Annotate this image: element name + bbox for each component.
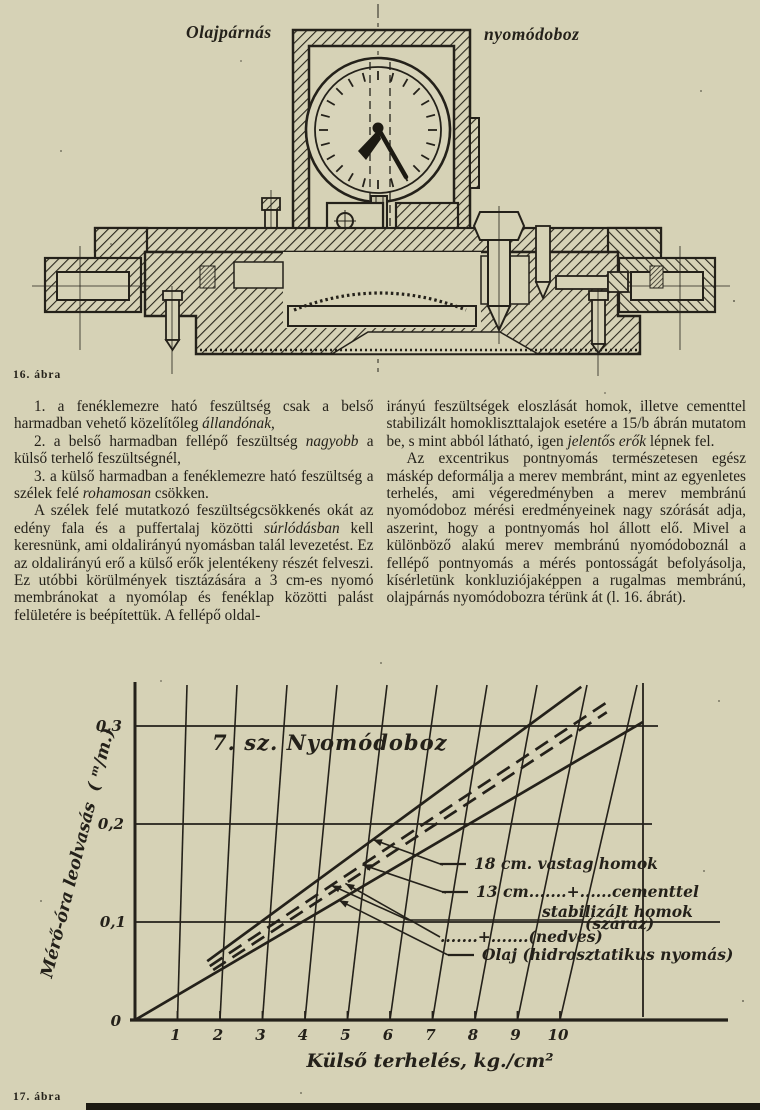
leader-arrowhead [339, 900, 349, 907]
tick-label: 3 [255, 1026, 265, 1044]
paragraph: A szélek felé mutatkozó feszültségcsökke… [14, 502, 374, 624]
tick-label: 0 [111, 1012, 122, 1030]
leader-arrowhead [345, 883, 355, 890]
legend-entry: Olaj (hidrosztatikus nyomás) [482, 945, 733, 964]
gridline-vertical [178, 685, 188, 1020]
tick-label: 2 [212, 1026, 223, 1044]
chart-title: 7. sz. Nyomódoboz [212, 730, 448, 755]
right-anchor-bolt [589, 286, 608, 376]
tick-label: 6 [383, 1026, 394, 1044]
paragraph: 1. a fenéklemezre ható feszültség csak a… [14, 398, 374, 433]
gasket-right [650, 266, 663, 288]
chart-x-axis-label: Külső terhelés, kg./cm² [275, 1050, 585, 1072]
article-text: 1. a fenéklemezre ható feszültség csak a… [14, 398, 746, 624]
tick-label: 4 [298, 1026, 308, 1044]
page-edge-bar [86, 1103, 760, 1110]
paragraph: 2. a belső harmadban fellépő feszültség … [14, 433, 374, 468]
legend-entry: .......+.......(nedves) [440, 927, 603, 946]
left-port [32, 246, 150, 350]
top-flange-plate [95, 228, 661, 252]
left-channel [234, 262, 283, 288]
tick-label: 8 [468, 1026, 479, 1044]
figure16-caption: 16. ábra [13, 369, 61, 381]
paragraph: Az excentrikus pontnyomás természetesen … [387, 450, 747, 607]
tick-label: 5 [340, 1026, 350, 1044]
figure17-caption: 17. ábra [13, 1091, 61, 1103]
scanned-book-page: Olajpárnás nyomódoboz [0, 0, 760, 1110]
scan-noise [0, 0, 2, 2]
gasket-left [200, 266, 215, 288]
legend-entry: 18 cm. vastag homok [474, 854, 658, 873]
needle-pivot [373, 123, 384, 134]
tick-label: 10 [548, 1026, 569, 1044]
pressure-plate [288, 306, 476, 326]
right-column: irányú feszültségek eloszlását homok, il… [387, 398, 747, 624]
tick-label: 0,1 [100, 913, 126, 931]
left-anchor-bolt [163, 286, 182, 374]
leader-arrowhead [373, 839, 383, 846]
paragraph: 3. a külső harmadban a fenéklemezre ható… [14, 468, 374, 503]
tick-label: 1 [170, 1026, 180, 1044]
paragraph: irányú feszültségek eloszlását homok, il… [387, 398, 747, 450]
tick-label: 9 [510, 1026, 521, 1044]
legend-entry: 13 cm.......+......cementtel [476, 882, 699, 901]
leader-arrowhead [362, 864, 372, 871]
figure16-drawing [0, 0, 760, 396]
pressure-cell-base [32, 206, 730, 376]
tick-label: 7 [425, 1026, 436, 1044]
pin-bolt [536, 226, 550, 298]
tick-label: 0,2 [98, 815, 124, 833]
left-column: 1. a fenéklemezre ható feszültség csak a… [14, 398, 374, 624]
